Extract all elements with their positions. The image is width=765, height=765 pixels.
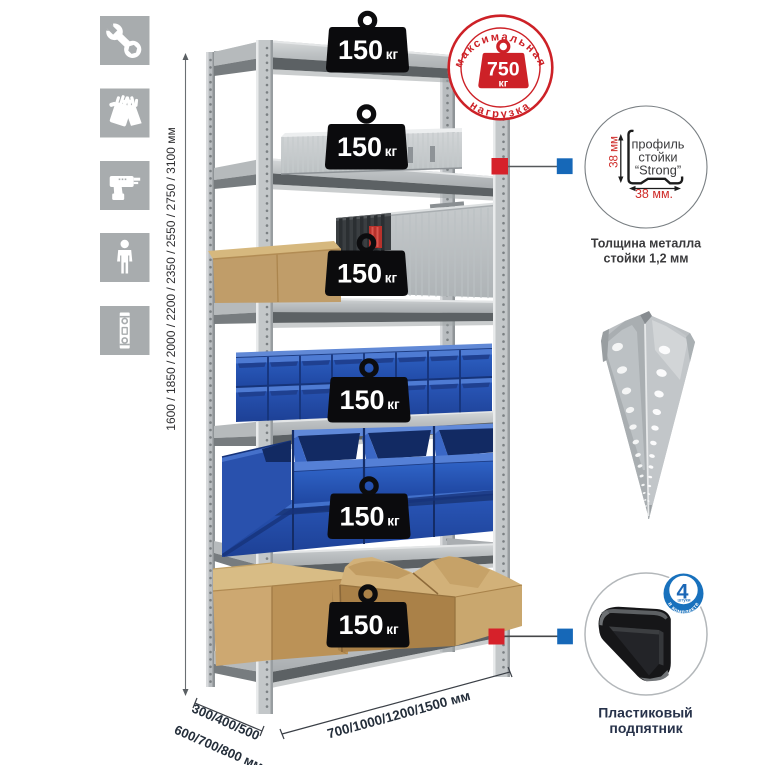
svg-text:38 мм.: 38 мм. xyxy=(635,187,673,201)
svg-text:кг: кг xyxy=(386,622,399,637)
svg-text:кг: кг xyxy=(387,397,400,412)
svg-text:кг: кг xyxy=(498,78,508,90)
svg-text:кг: кг xyxy=(385,144,398,159)
svg-text:кг: кг xyxy=(387,514,400,529)
svg-text:подпятник: подпятник xyxy=(609,720,683,736)
svg-text:штуки: штуки xyxy=(678,598,691,603)
svg-text:кг: кг xyxy=(385,271,398,286)
svg-text:150: 150 xyxy=(339,385,384,415)
svg-text:150: 150 xyxy=(339,502,384,532)
svg-text:38 мм: 38 мм xyxy=(609,136,621,168)
svg-text:700/1000/1200/1500 мм: 700/1000/1200/1500 мм xyxy=(326,688,472,741)
svg-text:150: 150 xyxy=(338,35,383,65)
svg-text:кг: кг xyxy=(386,47,399,62)
svg-text:Пластиковый: Пластиковый xyxy=(598,705,693,721)
svg-text:стойки 1,2 мм: стойки 1,2 мм xyxy=(604,252,689,266)
svg-text:“Strong”: “Strong” xyxy=(635,163,681,178)
svg-text:1600 / 1850 / 2000 / 2200 / 23: 1600 / 1850 / 2000 / 2200 / 2350 / 2550 … xyxy=(164,127,178,430)
svg-text:150: 150 xyxy=(337,132,382,162)
svg-text:150: 150 xyxy=(338,610,383,640)
svg-text:Толщина металла: Толщина металла xyxy=(591,237,702,251)
svg-text:150: 150 xyxy=(337,259,382,289)
